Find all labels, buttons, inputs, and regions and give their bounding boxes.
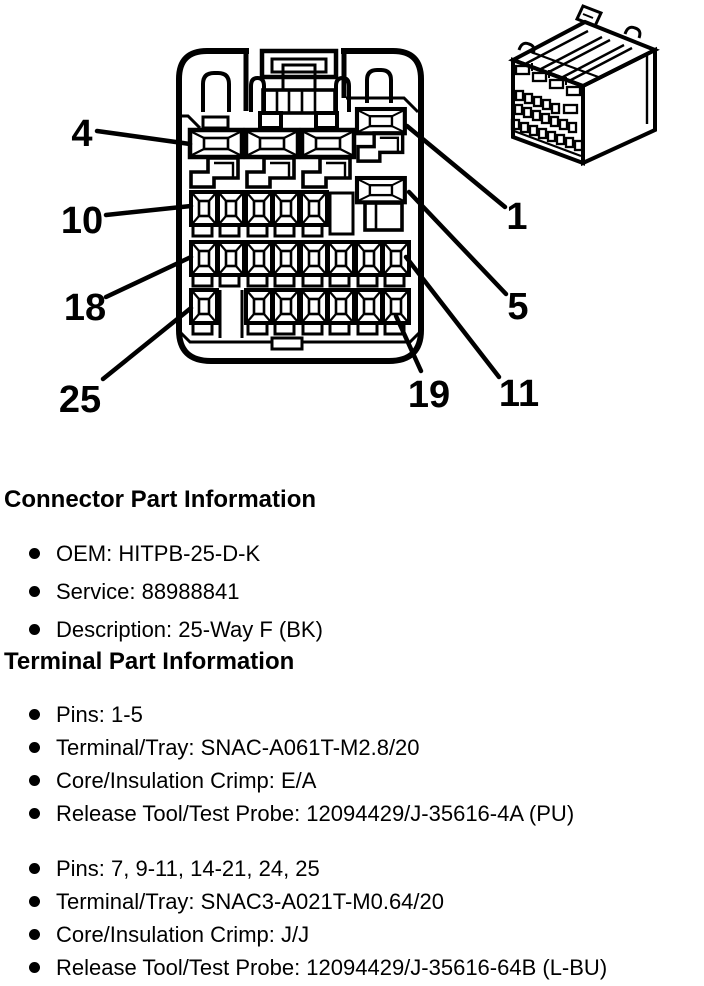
iso-terminal-holes <box>512 63 582 150</box>
list-item-text: Core/Insulation Crimp: J/J <box>56 922 309 947</box>
callout-label-18: 18 <box>64 287 106 329</box>
small-terminal-cavity <box>356 242 382 286</box>
list-item-text: Pins: 7, 9-11, 14-21, 24, 25 <box>56 856 320 881</box>
bullet-icon <box>29 808 40 819</box>
terminal-part-info-group-2: Pins: 7, 9-11, 14-21, 24, 25 Terminal/Tr… <box>0 856 700 980</box>
rib-bump-right <box>625 27 640 38</box>
connector-latch <box>246 51 349 128</box>
index-slot-top <box>203 117 228 128</box>
list-item-text: Terminal/Tray: SNAC3-A021T-M0.64/20 <box>56 889 444 914</box>
small-terminal-cavity <box>191 290 217 334</box>
list-item: Release Tool/Test Probe: 12094429/J-3561… <box>0 955 700 980</box>
list-item: Terminal/Tray: SNAC3-A021T-M0.64/20 <box>0 889 700 914</box>
list-item-text: Terminal/Tray: SNAC-A061T-M2.8/20 <box>56 735 420 760</box>
small-terminal-cavity <box>218 242 244 286</box>
list-item-text: Release Tool/Test Probe: 12094429/J-3561… <box>56 801 574 826</box>
small-terminal-cavity <box>191 192 217 236</box>
terminal-part-information-heading: Terminal Part Information <box>4 648 294 675</box>
small-terminal-cavity <box>356 290 382 334</box>
list-item-text: OEM: HITPB-25-D-K <box>56 541 260 566</box>
connector-info-page: 4 10 18 25 1 5 19 11 Connector Part Info… <box>0 0 704 986</box>
small-terminal-cavity <box>246 242 272 286</box>
connector-isometric-view <box>512 6 655 163</box>
bullet-icon <box>29 742 40 753</box>
list-item: Service: 88988841 <box>0 579 700 604</box>
small-terminal-cavity <box>328 242 354 286</box>
terminal-keyway <box>365 203 402 230</box>
bullet-icon <box>29 548 40 559</box>
blank-cavity <box>330 193 353 234</box>
small-terminal-cavity <box>246 290 272 334</box>
callout-label-11: 11 <box>499 373 539 415</box>
large-terminal-column-right <box>357 109 405 230</box>
terminal-keyway <box>358 133 403 161</box>
small-terminal-cavity <box>383 290 409 334</box>
connector-front-view <box>179 51 421 361</box>
small-terminal-cavity <box>301 192 327 236</box>
connector-part-information-heading: Connector Part Information <box>4 486 316 513</box>
list-item: Release Tool/Test Probe: 12094429/J-3561… <box>0 801 700 826</box>
list-item: Core/Insulation Crimp: E/A <box>0 768 700 793</box>
pin1-terminal-cavity <box>357 109 405 133</box>
small-terminal-row-3 <box>191 242 409 286</box>
list-item: Description: 25-Way F (BK) <box>0 617 700 642</box>
connector-diagram: 4 10 18 25 1 5 19 11 <box>0 0 704 462</box>
bullet-icon <box>29 863 40 874</box>
alignment-tab-left <box>203 73 229 112</box>
terminal-part-info-group-1: Pins: 1-5 Terminal/Tray: SNAC-A061T-M2.8… <box>0 702 700 826</box>
list-item-text: Description: 25-Way F (BK) <box>56 617 323 642</box>
list-item: Pins: 7, 9-11, 14-21, 24, 25 <box>0 856 700 881</box>
list-item-text: Pins: 1-5 <box>56 702 143 727</box>
small-terminal-cavity <box>246 192 272 236</box>
callout-label-25: 25 <box>59 379 101 421</box>
index-slot-bottom <box>272 338 302 349</box>
terminal-keyway <box>303 158 350 187</box>
large-terminal-cavity <box>302 130 354 157</box>
small-terminal-cavity <box>301 242 327 286</box>
connector-part-info-list: OEM: HITPB-25-D-K Service: 88988841 Desc… <box>0 541 700 642</box>
small-terminal-cavity <box>328 290 354 334</box>
list-item-text: Service: 88988841 <box>56 579 239 604</box>
bullet-icon <box>29 775 40 786</box>
callout-label-19: 19 <box>408 374 450 416</box>
callout-label-4: 4 <box>71 113 92 155</box>
large-terminal-row <box>190 130 354 187</box>
list-item: Terminal/Tray: SNAC-A061T-M2.8/20 <box>0 735 700 760</box>
terminal-keyway <box>191 158 238 187</box>
callout-label-5: 5 <box>507 286 528 328</box>
large-terminal-cavity <box>190 130 242 157</box>
small-terminal-row-4 <box>191 290 409 334</box>
bullet-icon <box>29 709 40 720</box>
small-terminal-cavity <box>273 242 299 286</box>
callout-label-1: 1 <box>506 196 527 238</box>
list-item: Pins: 1-5 <box>0 702 700 727</box>
list-item: Core/Insulation Crimp: J/J <box>0 922 700 947</box>
small-terminal-cavity <box>383 242 409 286</box>
bullet-icon <box>29 624 40 635</box>
bullet-icon <box>29 896 40 907</box>
list-item-text: Core/Insulation Crimp: E/A <box>56 768 316 793</box>
callout-label-10: 10 <box>61 200 103 242</box>
large-terminal-cavity <box>246 130 298 157</box>
bullet-icon <box>29 586 40 597</box>
row4-gap-walls <box>220 290 242 338</box>
small-terminal-cavity <box>273 290 299 334</box>
small-terminal-cavity <box>273 192 299 236</box>
ledge-left <box>181 116 200 128</box>
pin5-terminal-cavity <box>357 178 405 202</box>
bullet-icon <box>29 962 40 973</box>
small-terminal-cavity <box>218 192 244 236</box>
terminal-keyway <box>247 158 294 187</box>
list-item-text: Release Tool/Test Probe: 12094429/J-3561… <box>56 955 607 980</box>
list-item: OEM: HITPB-25-D-K <box>0 541 700 566</box>
small-terminal-cavity <box>191 242 217 286</box>
bullet-icon <box>29 929 40 940</box>
small-terminal-row-2 <box>191 192 353 236</box>
small-terminal-cavity <box>301 290 327 334</box>
